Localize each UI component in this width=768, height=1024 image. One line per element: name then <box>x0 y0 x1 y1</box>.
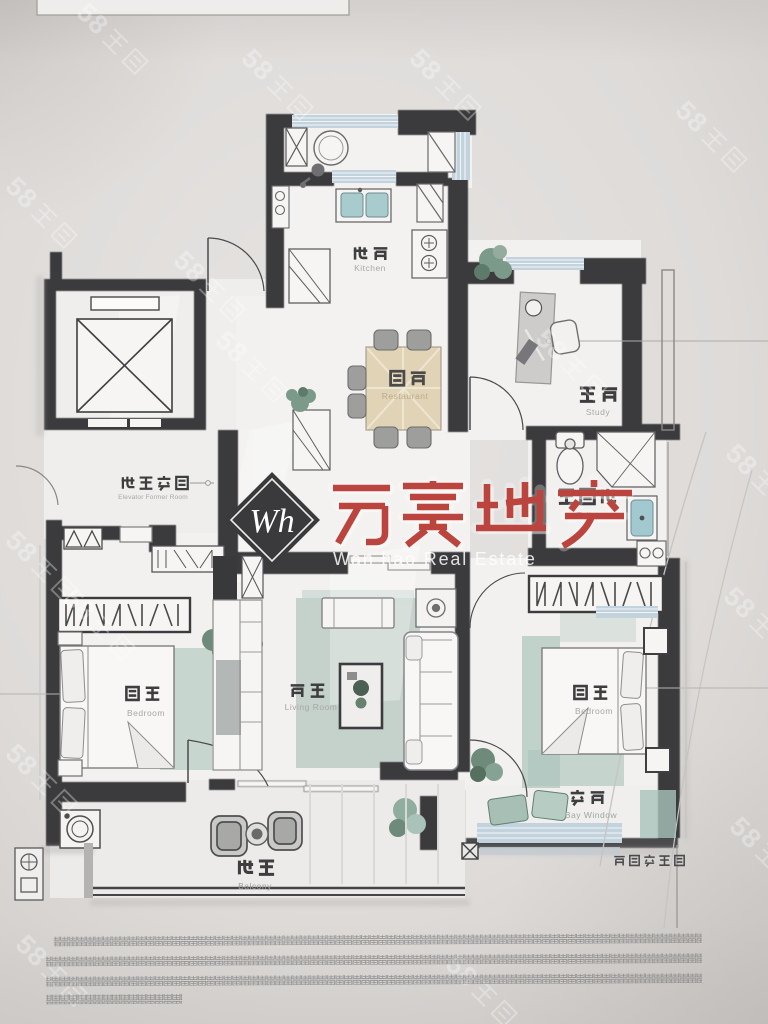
svg-text:Restaurant: Restaurant <box>382 391 429 401</box>
svg-text:Living Room: Living Room <box>285 702 338 712</box>
svg-text:Wan hao Real Estate: Wan hao Real Estate <box>333 549 537 569</box>
svg-text:Bedroom: Bedroom <box>575 706 613 716</box>
svg-text:Study: Study <box>586 407 610 417</box>
svg-text:Bay Window: Bay Window <box>565 810 618 820</box>
svg-text:Kitchen: Kitchen <box>354 263 386 273</box>
svg-text:Wh: Wh <box>249 503 294 540</box>
svg-text:Elevator Former Room: Elevator Former Room <box>118 494 188 501</box>
svg-text:Balcony: Balcony <box>238 881 272 891</box>
svg-text:Bedroom: Bedroom <box>127 708 165 718</box>
